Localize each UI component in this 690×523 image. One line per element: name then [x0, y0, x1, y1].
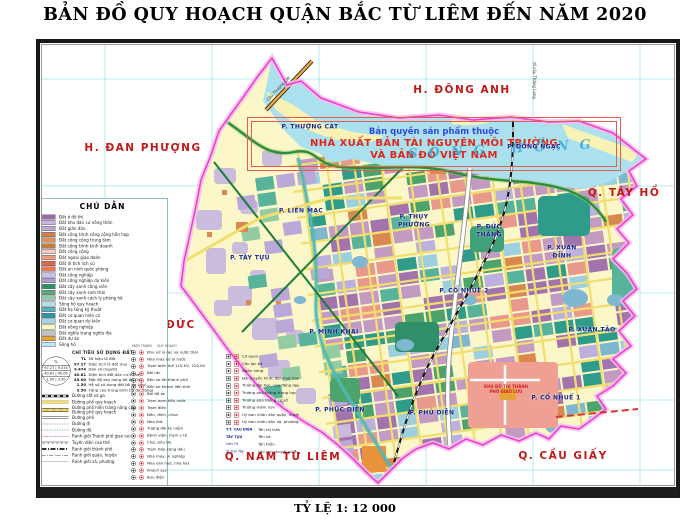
legend-item-label: Sông hồ [59, 342, 76, 347]
existing-symbol-icon [131, 385, 136, 390]
district-label: H. ĐÔNG ANH [413, 84, 510, 96]
existing-symbol-icon [131, 447, 136, 452]
b-ward-line-icon [42, 461, 69, 462]
legend-item-label: Đất công cộng [59, 249, 89, 254]
legend-symbol-item: Câu lạc bộ [226, 360, 299, 367]
symbols-header-planned: QUY HOẠCH [157, 344, 177, 348]
legend-symbol-item: Trạm tiếp xăng dầu [131, 446, 222, 453]
legend-line-label: Ranh giới quận, huyện [72, 453, 117, 458]
indicator-label: Diện tích lô đất (ha) [89, 362, 128, 367]
symbol-label: Trường phổ thông trung học [242, 391, 296, 395]
symbol-label: Bãi rác [147, 371, 161, 375]
legend-swatch [42, 272, 56, 277]
symbol-label: Trạm điện [147, 406, 166, 410]
legend-symbol-item: Bưu điện [131, 474, 222, 481]
ward-label: P. XUÂN ĐỈNH [545, 245, 579, 260]
red-arrow-line-icon [42, 436, 69, 437]
road-y-line-icon [42, 401, 69, 404]
legend-symbol-item: Trường phổ thông cơ sở [226, 397, 299, 404]
planned-symbol-icon [139, 440, 144, 445]
watermark-line1: Bản quyền sản phẩm thuộc [369, 127, 499, 137]
legend-name-item: đi Sơn TâyGhi chú thuyết minh [226, 448, 299, 455]
existing-symbol-icon [131, 350, 136, 355]
legend-line-label: Đường phố quy hoạch [72, 400, 116, 405]
legend-symbol-item: Trạm bơm tiêu nước [131, 398, 222, 405]
existing-symbol-icon [226, 354, 231, 359]
legend-symbol-item: Trường mầm non [226, 404, 299, 411]
planned-symbol-icon [139, 385, 144, 390]
legend-symbols-col2: Cơ quanCâu lạc bộNgân hàngĐài truyền hìn… [226, 344, 299, 492]
legend-swatch [42, 313, 56, 318]
legend-line-label: Đường sắt và ga [72, 394, 105, 399]
legend-item-label: Đất giãn dân [59, 226, 85, 231]
symbol-label: Trường phổ thông cơ sở [242, 398, 288, 402]
ward-label: P. THƯỢNG CÁT [282, 124, 339, 131]
existing-symbol-icon [131, 433, 136, 438]
planned-symbol-icon [139, 419, 144, 424]
symbol-label: Nhà văn hoá, nhà hát [147, 461, 189, 465]
existing-symbol-icon [226, 369, 231, 374]
planned-symbol-icon [139, 433, 144, 438]
existing-symbol-icon [226, 420, 231, 425]
symbol-label: Câu lạc bộ [242, 362, 263, 366]
indicator-value: 45.00 [73, 377, 86, 382]
indicator-value: 3.50 [73, 388, 86, 393]
legend-symbol-item: Trạm biến thế 110 KV, 220 KV [131, 363, 222, 370]
name-label: Tên xã [258, 435, 271, 440]
symbol-label: Chợ, siêu thị [147, 441, 171, 445]
legend-item-label: Đất nông nghiệp [59, 325, 93, 330]
planned-symbol-icon [139, 447, 144, 452]
legend-symbol-item: Chợ, siêu thị [131, 439, 222, 446]
name-label: Tên thôn [258, 442, 275, 447]
ward-label: P. CỔ NHUẾ 2 [439, 288, 488, 295]
legend-name-item: TÂY TỰUTên xã [226, 433, 299, 440]
planned-symbol-icon [234, 420, 239, 425]
existing-symbol-icon [131, 364, 136, 369]
legend-item-label: Đất ở đô thị [59, 214, 83, 219]
legend-item-label: Đất công nghiệp [59, 272, 93, 277]
legend-symbol-item: Bến xe tải thành phố [131, 377, 222, 384]
existing-symbol-icon [131, 468, 136, 473]
legend-symbols-col1: HIỆN TRẠNG QUY HOẠCH Khu xử lý rác và nư… [131, 344, 222, 492]
legend-line-label: Ranh giới Thành phố giao lưu [72, 434, 131, 439]
name-label: Tên thị trấn [258, 427, 280, 432]
planned-symbol-icon [139, 461, 144, 466]
planned-symbol-icon [139, 371, 144, 376]
legend-swatch [42, 220, 56, 225]
existing-symbol-icon [131, 357, 136, 362]
ward-label: P. CỔ NHUẾ 1 [531, 395, 580, 402]
symbol-label: Khu xử lý rác và nước thải [147, 350, 198, 354]
planned-symbol-icon [139, 406, 144, 411]
legend-symbol-item: Tượng đài kỷ niệm [131, 425, 222, 432]
planned-symbol-icon [139, 454, 144, 459]
ward-label: P. ĐÔNG NGẠC [507, 144, 561, 151]
b-city-line-icon [42, 448, 69, 450]
district-label: H. ĐAN PHƯỢNG [84, 142, 201, 154]
legend-symbol-item: Khu xử lý rác và nước thải [131, 349, 222, 356]
indicator-value: 40.81 [73, 372, 86, 377]
legend-line-label: Đường phố [72, 415, 94, 420]
symbol-label: Bệnh viện, trạm y tế [147, 434, 187, 438]
planned-symbol-icon [139, 412, 144, 417]
existing-symbol-icon [226, 405, 231, 410]
legend-line-label: Đường đi [72, 422, 90, 427]
legend-swatch [42, 330, 56, 335]
planned-symbol-icon [139, 378, 144, 383]
planned-symbol-icon [234, 361, 239, 366]
legend-symbols-panel: HIỆN TRẠNG QUY HOẠCH Khu xử lý rác và nư… [131, 344, 303, 492]
symbol-label: Đài truyền hình, đài phát thanh [242, 376, 299, 380]
legend-title: CHÚ DẪN [42, 202, 164, 211]
legend-swatch [42, 342, 56, 347]
existing-symbol-icon [131, 419, 136, 424]
legend-swatch [42, 267, 56, 272]
legend-line-label: Ranh giới thành phố [72, 447, 112, 452]
symbol-label: Bãi đỗ xe [147, 392, 165, 396]
legend-symbol-item: Nhà văn hoá, nhà hát [131, 460, 222, 467]
legend-symbol-item: Bến xe khách liên tỉnh [131, 384, 222, 391]
legend-swatch [42, 243, 56, 248]
existing-symbol-icon [131, 371, 136, 376]
power-line-icon [42, 442, 69, 445]
name-sample: T.T. CẦU DIỄN [226, 428, 255, 432]
legend-symbol-item: Khách sạn [131, 467, 222, 474]
legend-swatch [42, 278, 56, 283]
legend-item-label: Đất nghĩa trang nghĩa địa [59, 330, 112, 335]
map-annotation: KHU ĐÔ THỊ THÀNH PHỐ GIAO LƯU [482, 384, 530, 394]
planned-symbol-icon [139, 357, 144, 362]
legend-item-label: Sông hồ quy hoạch [59, 301, 98, 306]
existing-symbol-icon [131, 406, 136, 411]
indicator-label: Số hiệu lô đất [89, 357, 116, 362]
ward-label: P. MINH KHAI [309, 329, 358, 336]
legend-item-label: Đất cây xanh sinh thái [59, 290, 105, 295]
symbol-label: Nhà thờ [147, 420, 162, 424]
existing-symbol-icon [131, 412, 136, 417]
symbol-label: Uỷ ban nhân dân xã, phường [242, 420, 299, 424]
planned-symbol-icon [139, 350, 144, 355]
symbol-label: Trạm bơm tiêu nước [147, 399, 186, 403]
legend-item-label: Đất công nghiệp dự kiến [59, 278, 109, 283]
symbol-label: Ngân hàng [242, 369, 263, 373]
legend-item-label: Đất hạ tầng kỹ thuật [59, 307, 102, 312]
symbol-label: Bưu điện [147, 475, 164, 479]
legend-line-label: Đường phố hiện trạng nâng cấp Đường phố … [72, 405, 136, 414]
planned-symbol-icon [139, 468, 144, 473]
indicator-value: 9.474 [73, 367, 86, 372]
planned-symbol-icon [234, 369, 239, 374]
existing-symbol-icon [226, 398, 231, 403]
legend-line-label: Ranh giới xã, phường [72, 459, 114, 464]
ward-label: P. TÂY TỰU [230, 255, 270, 262]
name-sample: đi Sơn Tây [226, 450, 255, 454]
legend-symbol-item: Nhà máy xử lý nước [131, 356, 222, 363]
legend-symbol-item: Cơ quan [226, 353, 299, 360]
symbol-label: Khách sạn [147, 468, 167, 472]
symbol-label: Uỷ ban nhân dân quận, huyện [242, 413, 299, 417]
symbol-label: Trường mầm non [242, 406, 275, 410]
path-line-icon [42, 424, 69, 425]
name-label: Ghi chú thuyết minh [258, 449, 298, 454]
map-annotation: đi cầu Thăng Long [532, 62, 537, 99]
planned-symbol-icon [139, 399, 144, 404]
lot-indicator-stamp: TL97.27 | 9.47440.81 | 45.001.50 | 3.50 [42, 356, 71, 385]
existing-symbol-icon [226, 391, 231, 396]
existing-symbol-icon [131, 378, 136, 383]
indicator-value: 1.50 [73, 383, 86, 388]
planned-symbol-icon [234, 354, 239, 359]
name-sample: Văn Trì [226, 442, 255, 446]
legend-item-label: Đất dự án [59, 336, 79, 341]
existing-symbol-icon [131, 399, 136, 404]
name-sample: TÂY TỰU [226, 435, 255, 439]
legend-swatch [42, 296, 56, 301]
legend-swatch [42, 214, 56, 219]
legend-swatch [42, 319, 56, 324]
road-w-line-icon [42, 416, 69, 419]
legend-swatch [42, 284, 56, 289]
ward-label: P. PHÚ DIỄN [410, 410, 455, 417]
existing-symbol-icon [226, 383, 231, 388]
existing-symbol-icon [226, 376, 231, 381]
existing-symbol-icon [131, 426, 136, 431]
legend-symbol-item: Đài truyền hình, đài phát thanh [226, 375, 299, 382]
ward-label: P. PHÚC DIỄN [315, 407, 365, 414]
legend-swatch [42, 232, 56, 237]
planned-symbol-icon [234, 413, 239, 418]
legend-item-label: Đất an ninh quốc phòng [59, 267, 108, 272]
legend-symbol-item: Ngân hàng [226, 368, 299, 375]
legend-swatch [42, 249, 56, 254]
planned-symbol-icon [234, 398, 239, 403]
legend-symbol-item: Uỷ ban nhân dân quận, huyện [226, 411, 299, 418]
ward-label: P. ĐỨC THẮNG [472, 224, 506, 239]
legend-swatch [42, 307, 56, 312]
legend-item-label: Đất công cộng trung tâm [59, 238, 111, 243]
legend-name-item: T.T. CẦU DIỄNTên thị trấn [226, 426, 299, 433]
dike-line-icon [42, 430, 69, 431]
road-c-line-icon [42, 408, 69, 412]
legend-symbol-item: Bãi rác [131, 370, 222, 377]
ward-label: P. XUÂN TẢO [569, 327, 616, 334]
legend-symbol-item: Bệnh viện, trạm y tế [131, 432, 222, 439]
planned-symbol-icon [234, 376, 239, 381]
existing-symbol-icon [131, 454, 136, 459]
b-dist-line-icon [42, 455, 69, 456]
legend-land-use-list: Đất ở đô thịĐất khu dân cư nông thônĐất … [42, 214, 164, 347]
legend-swatch [42, 226, 56, 231]
legend-symbol-item: Nhà thờ [131, 418, 222, 425]
symbol-label: Bến xe khách liên tỉnh [147, 385, 190, 389]
district-label: Q. CẦU GIẤY [518, 450, 607, 462]
legend-item-label: Đất cây xanh công viên [59, 284, 107, 289]
symbol-label: Đền, đình, chùa [147, 413, 178, 417]
ward-label: P. LIÊN MẠC [279, 208, 323, 215]
symbol-label: Tượng đài kỷ niệm [147, 427, 183, 431]
legend-swatch [42, 336, 56, 341]
legend-item-label: Đất công trình kinh doanh [59, 243, 113, 248]
existing-symbol-icon [131, 461, 136, 466]
legend-swatch [42, 238, 56, 243]
legend-symbol-item: Uỷ ban nhân dân xã, phường [226, 419, 299, 426]
rail-line-icon [42, 395, 69, 398]
legend-swatch [42, 325, 56, 330]
symbol-label: Nhà máy xử lý nước [147, 357, 186, 361]
legend-item-label: Đất khu dân cư nông thôn [59, 220, 112, 225]
legend-line-label: Đường đê [72, 428, 91, 433]
symbol-label: Nhà máy, xí nghiệp [147, 455, 185, 459]
legend-symbol-item: Nhà máy, xí nghiệp [131, 453, 222, 460]
district-label: Q. TÂY HỒ [588, 187, 661, 199]
planned-symbol-icon [139, 364, 144, 369]
existing-symbol-icon [131, 392, 136, 397]
planned-symbol-icon [139, 475, 144, 480]
legend-line-label: Tuyến điện cao thế [72, 441, 110, 446]
planned-symbol-icon [234, 391, 239, 396]
legend-symbol-item: Trường phổ thông trung học [226, 389, 299, 396]
legend-swatch [42, 301, 56, 306]
symbol-label: Trạm biến thế 110 KV, 220 KV [147, 364, 205, 368]
stamp-row: 1.50 | 3.50 [42, 376, 70, 382]
legend-swatch [42, 261, 56, 266]
indicator-label: Dân số (người) [89, 367, 118, 372]
existing-symbol-icon [131, 475, 136, 480]
legend-item-label: Đất ngoại giao đoàn [59, 255, 100, 260]
existing-symbol-icon [226, 413, 231, 418]
legend-symbol-item: Đền, đình, chùa [131, 412, 222, 419]
planned-symbol-icon [139, 426, 144, 431]
ward-label: P. THỤY PHƯƠNG [397, 214, 431, 229]
legend-symbol-item: Trạm điện [131, 405, 222, 412]
map-sheet: BẢN ĐỒ QUY HOẠCH QUẬN BẮC TỪ LIÊM ĐẾN NĂ… [0, 0, 690, 523]
indicator-value: 97.27 [73, 362, 86, 367]
planned-symbol-icon [234, 383, 239, 388]
planned-symbol-icon [234, 405, 239, 410]
legend-item-label: Đất công trình công cộng hỗn hợp [59, 232, 129, 237]
symbol-label: Trạm tiếp xăng dầu [147, 448, 185, 452]
legend-item-label: Đất di tích lịch sử [59, 261, 95, 266]
symbol-label: Bến xe tải thành phố [147, 378, 188, 382]
legend-symbol-item: Trường đại học, cao đẳng dạy nghề [226, 382, 299, 389]
planned-symbol-icon [139, 392, 144, 397]
legend-item-label: Đất cơ quan hiện có [59, 313, 100, 318]
legend-swatch [42, 290, 56, 295]
symbol-label: Trường đại học, cao đẳng dạy nghề [242, 384, 299, 388]
symbols-header-existing: HIỆN TRẠNG [132, 344, 152, 348]
legend-symbol-item: Bãi đỗ xe [131, 391, 222, 398]
legend-item-label: Đất cơ quan dự kiến [59, 319, 100, 324]
existing-symbol-icon [131, 440, 136, 445]
indicator-value: TL [73, 357, 86, 362]
existing-symbol-icon [226, 361, 231, 366]
symbol-label: Cơ quan [242, 355, 258, 359]
legend-item-label: Đất cây xanh cách ly phòng hộ [59, 296, 123, 301]
legend-name-item: Văn TrìTên thôn [226, 441, 299, 448]
legend-swatch [42, 255, 56, 260]
